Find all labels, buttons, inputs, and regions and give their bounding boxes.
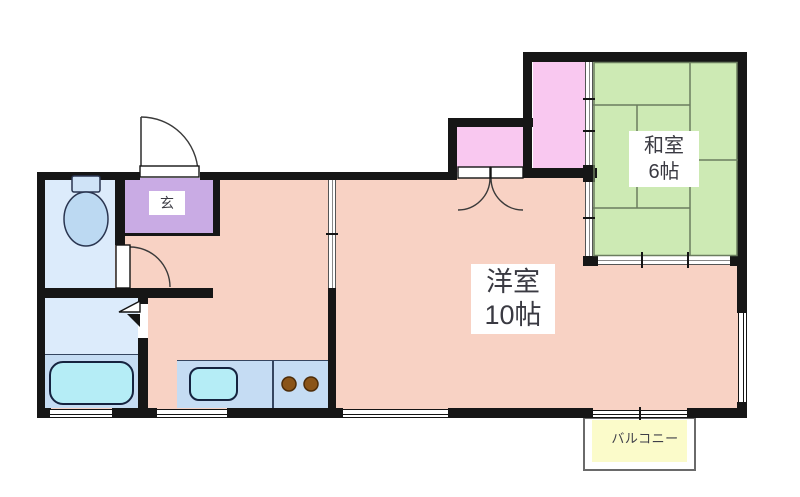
balcony-label: バルコニー — [599, 430, 691, 448]
room-toilet — [45, 180, 115, 288]
sliding-door-japanese-western-bottom — [598, 255, 730, 265]
window-kitchen — [157, 409, 227, 418]
western-room-name: 洋室 — [471, 266, 555, 299]
wall — [115, 172, 125, 245]
wall — [583, 165, 595, 182]
wall — [737, 52, 747, 313]
wall — [200, 172, 457, 180]
wall — [37, 172, 45, 418]
floorplan: 玄 和室 6帖 洋室 10帖 バルコニー — [0, 0, 800, 497]
wall — [112, 408, 157, 418]
sliding-door-closet-japanese — [585, 62, 593, 165]
entrance-label: 玄 — [149, 191, 185, 215]
japanese-room-label: 和室 6帖 — [629, 131, 699, 187]
window-western-south — [343, 409, 448, 418]
wall — [138, 298, 148, 304]
wall — [213, 172, 220, 236]
wall — [448, 408, 593, 418]
kitchen-counter — [177, 360, 328, 408]
wall — [138, 338, 148, 410]
wall-genkan-edge — [125, 233, 220, 236]
entrance-door-icon — [140, 117, 199, 177]
western-room-size: 10帖 — [471, 299, 555, 332]
room-washroom — [45, 298, 140, 354]
wall — [448, 118, 533, 127]
wall — [523, 52, 747, 62]
wall — [737, 402, 747, 418]
western-room-label: 洋室 10帖 — [471, 264, 555, 334]
washroom-door-opening — [138, 304, 148, 338]
sliding-door-western-japanese-side — [585, 182, 593, 256]
closet-small — [457, 127, 525, 172]
wall — [448, 118, 457, 180]
window-bathroom — [50, 409, 112, 418]
closet-tall — [533, 60, 585, 168]
window-balcony-slider — [593, 410, 687, 418]
wall — [40, 288, 213, 298]
wall — [523, 52, 532, 178]
sliding-door-hall-western — [328, 180, 336, 288]
room-bathroom — [45, 354, 138, 408]
wall — [227, 408, 343, 418]
wall — [583, 256, 598, 266]
kitchen-counter-divider — [272, 360, 274, 408]
wall — [328, 288, 336, 410]
japanese-room-name: 和室 — [629, 133, 699, 159]
japanese-room-size: 6帖 — [629, 159, 699, 185]
window-western-east — [738, 313, 747, 402]
